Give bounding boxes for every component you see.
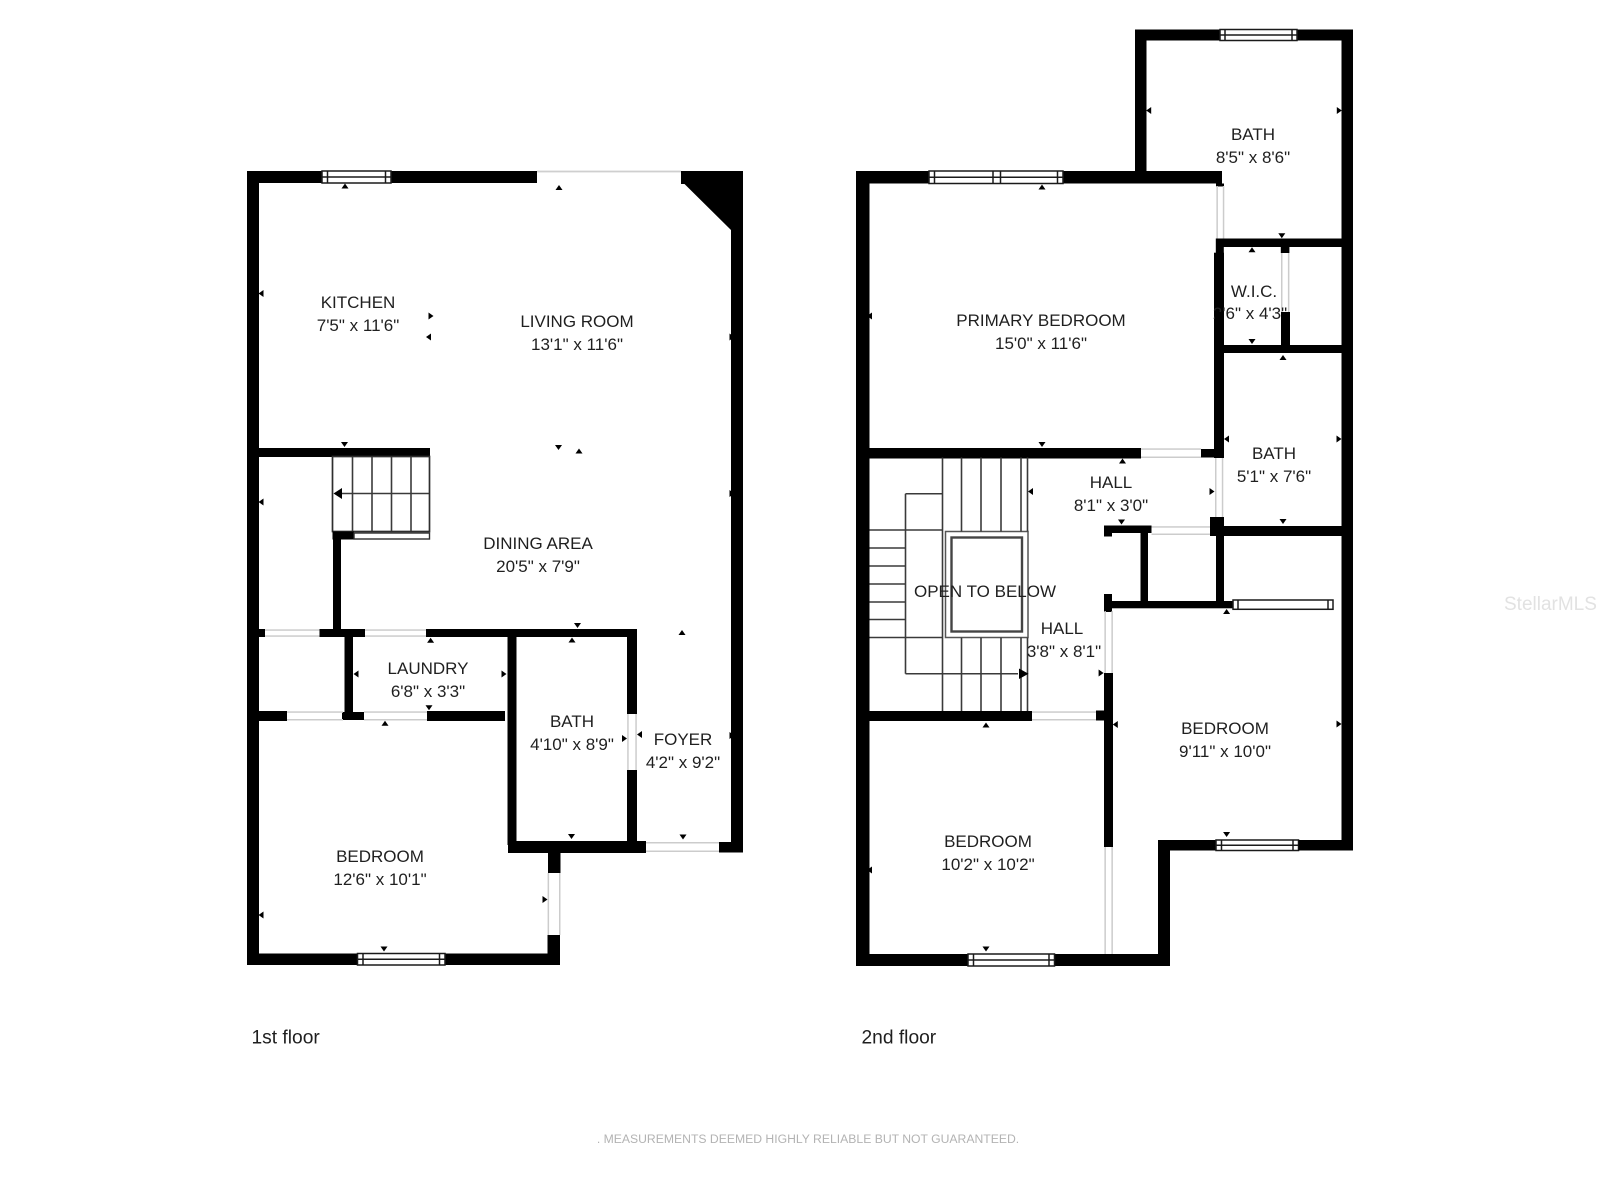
svg-text:2nd floor: 2nd floor (862, 1028, 937, 1049)
svg-text:BEDROOM: BEDROOM (336, 847, 424, 866)
svg-text:BATH: BATH (550, 712, 594, 731)
svg-text:8'1" x 3'0": 8'1" x 3'0" (1074, 496, 1148, 515)
svg-text:4'2" x 9'2": 4'2" x 9'2" (646, 753, 720, 772)
svg-text:6'8" x 3'3": 6'8" x 3'3" (391, 682, 465, 701)
svg-text:1st floor: 1st floor (252, 1028, 321, 1049)
svg-text:OPEN TO BELOW: OPEN TO BELOW (914, 582, 1056, 601)
svg-text:BEDROOM: BEDROOM (1181, 719, 1269, 738)
svg-text:4'10" x 8'9": 4'10" x 8'9" (530, 735, 614, 754)
svg-text:. MEASUREMENTS DEEMED HIGHLY R: . MEASUREMENTS DEEMED HIGHLY RELIABLE BU… (597, 1132, 1019, 1146)
svg-text:8'5" x 8'6": 8'5" x 8'6" (1216, 148, 1290, 167)
svg-text:7'5" x 11'6": 7'5" x 11'6" (317, 316, 400, 335)
svg-text:FOYER: FOYER (654, 730, 713, 749)
svg-text:20'5" x 7'9": 20'5" x 7'9" (496, 557, 580, 576)
svg-text:10'2" x 10'2": 10'2" x 10'2" (941, 855, 1034, 874)
svg-text:3'8" x 8'1": 3'8" x 8'1" (1027, 642, 1101, 661)
svg-text:KITCHEN: KITCHEN (321, 293, 396, 312)
svg-text:12'6" x 10'1": 12'6" x 10'1" (333, 870, 426, 889)
svg-text:13'1" x 11'6": 13'1" x 11'6" (531, 335, 623, 354)
svg-text:BATH: BATH (1252, 444, 1296, 463)
svg-text:5'1" x 7'6": 5'1" x 7'6" (1237, 467, 1311, 486)
svg-text:HALL: HALL (1041, 619, 1084, 638)
svg-text:StellarMLS: StellarMLS (1504, 594, 1597, 615)
svg-text:9'11" x 10'0": 9'11" x 10'0" (1179, 742, 1271, 761)
svg-text:LAUNDRY: LAUNDRY (388, 659, 469, 678)
svg-text:LIVING ROOM: LIVING ROOM (520, 312, 633, 331)
svg-text:BEDROOM: BEDROOM (944, 832, 1032, 851)
svg-text:BATH: BATH (1231, 125, 1275, 144)
svg-text:HALL: HALL (1090, 473, 1133, 492)
svg-text:PRIMARY BEDROOM: PRIMARY BEDROOM (956, 311, 1125, 330)
svg-text:15'0" x 11'6": 15'0" x 11'6" (995, 334, 1087, 353)
svg-text:DINING AREA: DINING AREA (483, 534, 593, 553)
svg-text:W.I.C.: W.I.C. (1231, 282, 1277, 301)
